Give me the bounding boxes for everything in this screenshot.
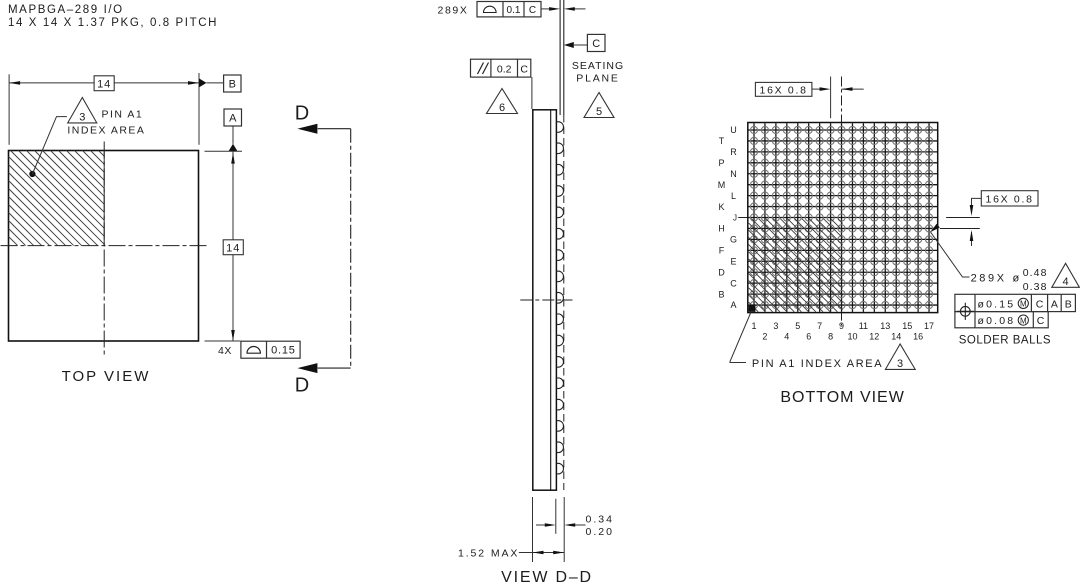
svg-text:PLANE: PLANE	[576, 73, 619, 85]
svg-text:D: D	[295, 375, 309, 397]
svg-text:11: 11	[859, 321, 868, 331]
svg-text:14: 14	[226, 242, 240, 254]
svg-text:15: 15	[902, 321, 912, 331]
svg-text:P: P	[718, 158, 724, 168]
svg-text:D: D	[718, 267, 725, 277]
svg-text:4: 4	[1063, 276, 1069, 288]
svg-text:0.38: 0.38	[1023, 281, 1048, 293]
svg-text:B: B	[229, 78, 236, 90]
svg-text:10: 10	[847, 331, 857, 341]
svg-text:N: N	[730, 169, 737, 179]
svg-text:5: 5	[795, 321, 800, 331]
svg-text:A: A	[1051, 298, 1058, 310]
svg-text:14: 14	[891, 331, 901, 341]
svg-text:6: 6	[806, 331, 811, 341]
svg-text:TOP VIEW: TOP VIEW	[62, 368, 151, 385]
svg-text:U: U	[730, 125, 737, 135]
svg-text:PIN A1: PIN A1	[102, 109, 144, 121]
svg-text:12: 12	[869, 331, 879, 341]
svg-text:3: 3	[897, 358, 903, 370]
svg-text:0.1: 0.1	[507, 5, 521, 16]
svg-text:M: M	[1020, 316, 1027, 325]
svg-text:7: 7	[817, 321, 822, 331]
svg-text:L: L	[731, 191, 736, 201]
svg-text:C: C	[592, 38, 600, 50]
svg-text:0.48: 0.48	[1023, 267, 1048, 279]
svg-text:E: E	[730, 257, 736, 267]
svg-text:4: 4	[784, 331, 789, 341]
svg-text:R: R	[730, 147, 737, 157]
svg-text:17: 17	[924, 321, 934, 331]
svg-text:B: B	[1065, 298, 1072, 310]
svg-text:4X: 4X	[218, 345, 232, 357]
svg-text:0.34: 0.34	[586, 514, 614, 526]
svg-text:0.2: 0.2	[497, 64, 512, 76]
svg-text:INDEX AREA: INDEX AREA	[67, 125, 145, 137]
svg-text:0.20: 0.20	[586, 526, 614, 538]
svg-text:C: C	[1037, 315, 1045, 327]
svg-text:J: J	[733, 214, 737, 223]
svg-text:C: C	[529, 5, 536, 16]
svg-text:289X: 289X	[438, 4, 469, 16]
svg-text:16X 0.8: 16X 0.8	[986, 194, 1034, 206]
svg-text:B: B	[718, 289, 724, 299]
svg-text:C: C	[730, 278, 737, 288]
svg-text:A: A	[229, 112, 237, 124]
svg-text:MAPBGA–289 I/O: MAPBGA–289 I/O	[8, 4, 124, 16]
svg-text:ø: ø	[1013, 272, 1020, 284]
svg-text:SEATING: SEATING	[572, 60, 624, 72]
svg-text:14: 14	[97, 78, 111, 90]
svg-text:M: M	[718, 180, 726, 190]
svg-text:A: A	[730, 300, 736, 310]
svg-text:SOLDER BALLS: SOLDER BALLS	[959, 335, 1051, 347]
svg-text:16X 0.8: 16X 0.8	[760, 84, 808, 96]
svg-text:K: K	[718, 202, 724, 212]
svg-text:13: 13	[880, 321, 890, 331]
svg-text:1: 1	[751, 321, 756, 331]
svg-text:3: 3	[79, 112, 85, 124]
svg-text:9: 9	[839, 321, 844, 331]
svg-text:H: H	[718, 224, 725, 234]
svg-text:F: F	[719, 246, 725, 256]
svg-text:1.52 MAX: 1.52 MAX	[458, 548, 519, 560]
svg-text:8: 8	[828, 331, 833, 341]
svg-text:14 X 14 X 1.37 PKG, 0.8 PITCH: 14 X 14 X 1.37 PKG, 0.8 PITCH	[8, 17, 218, 29]
svg-text:289X: 289X	[971, 272, 1007, 284]
svg-text:2: 2	[762, 331, 767, 341]
svg-text:M: M	[1020, 300, 1027, 309]
svg-text:C: C	[1036, 298, 1044, 310]
svg-text:ø0.08: ø0.08	[978, 315, 1016, 327]
svg-text:BOTTOM VIEW: BOTTOM VIEW	[780, 389, 904, 406]
svg-text:PIN A1 INDEX AREA: PIN A1 INDEX AREA	[752, 358, 883, 370]
svg-text:ø0.15: ø0.15	[978, 298, 1016, 310]
svg-text:0.15: 0.15	[271, 345, 296, 357]
svg-text:D: D	[295, 103, 309, 125]
svg-text:16: 16	[913, 331, 923, 341]
svg-text:G: G	[730, 235, 737, 245]
svg-text:3: 3	[773, 321, 778, 331]
svg-text:VIEW D–D: VIEW D–D	[501, 569, 593, 586]
svg-text:6: 6	[499, 102, 505, 114]
svg-text:5: 5	[596, 106, 602, 118]
svg-text:C: C	[520, 64, 528, 76]
svg-text:T: T	[719, 136, 725, 146]
